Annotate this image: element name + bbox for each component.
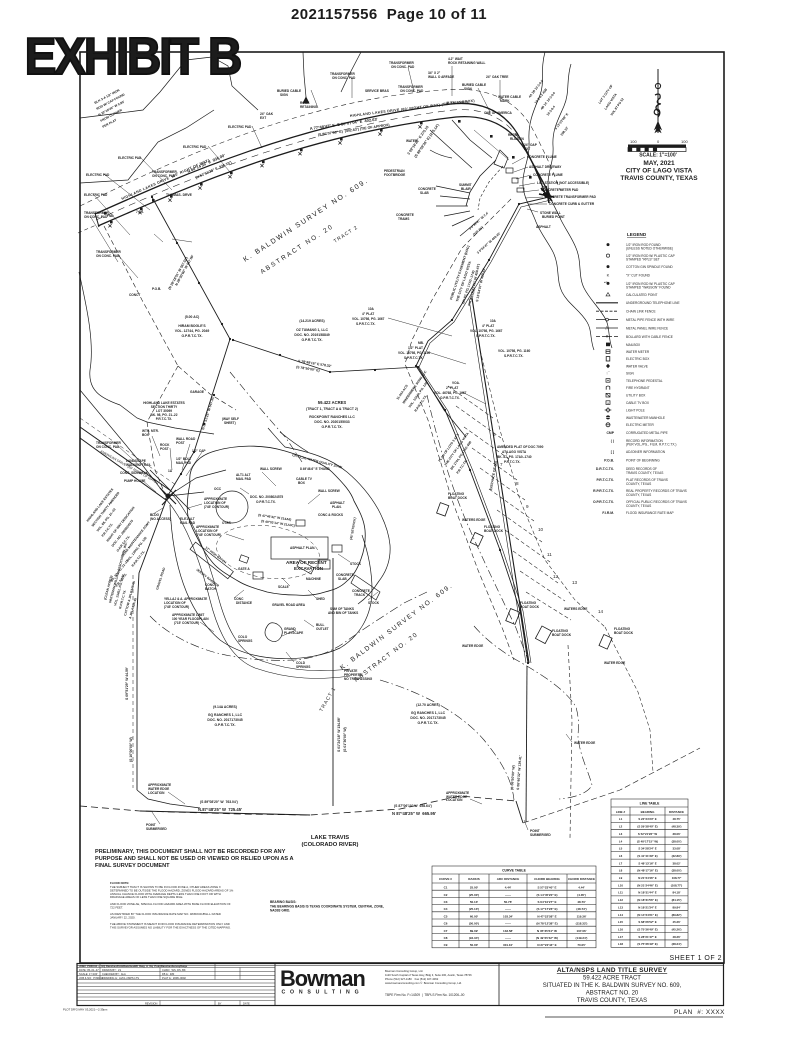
svg-text:CONCRETE FLUME: CONCRETE FLUME [533, 173, 563, 177]
svg-text:O.P.R.T.C.TX.: O.P.R.T.C.TX. [417, 721, 438, 725]
svg-text:BEARING BASIS:: BEARING BASIS: [270, 900, 296, 904]
svg-text:ELECTRIC PAD: ELECTRIC PAD [84, 193, 108, 197]
svg-text:S 22°34′23″ E: S 22°34′23″ E [638, 817, 656, 821]
svg-text:12: 12 [553, 574, 559, 579]
svg-text:EXT: EXT [260, 116, 266, 120]
svg-text:WALL SCREW: WALL SCREW [318, 489, 340, 493]
svg-text:L1: L1 [619, 817, 623, 821]
svg-text:(NO ACCESS): (NO ACCESS) [150, 517, 171, 521]
svg-text:L3: L3 [619, 832, 623, 836]
svg-text:TRAVIS COUNTY, TEXAS: TRAVIS COUNTY, TEXAS [620, 175, 698, 182]
svg-text:ALTA/NSPS LAND TITLE SURVEY: ALTA/NSPS LAND TITLE SURVEY [557, 967, 668, 974]
svg-text:10A: 10A [490, 319, 497, 323]
svg-text:BOAT DOCK: BOAT DOCK [448, 496, 468, 500]
svg-text:L5: L5 [619, 847, 623, 851]
svg-text:VOL. 10798, PG. 1667: VOL. 10798, PG. 1667 [470, 329, 503, 333]
svg-text:301.10': 301.10' [503, 943, 513, 947]
svg-text:P.O.B.: P.O.B. [604, 459, 614, 463]
svg-text:VOL. 10798, PG. 1160: VOL. 10798, PG. 1160 [398, 351, 430, 355]
svg-text:THIS SURVEYOR ASSUMES NO LIABI: THIS SURVEYOR ASSUMES NO LIABILITY FOR T… [110, 925, 231, 929]
svg-text:——: —— [505, 922, 511, 926]
svg-text:PRELIMINARY, THIS DOCUMENT SHA: PRELIMINARY, THIS DOCUMENT SHALL NOT BE … [95, 849, 286, 855]
svg-text:(94.34'): (94.34') [469, 936, 479, 940]
svg-text:(50.00'): (50.00') [469, 922, 479, 926]
svg-text:BOAT DOCK: BOAT DOCK [614, 631, 634, 635]
svg-text:9: 9 [526, 504, 529, 509]
svg-text:10: 10 [538, 527, 544, 532]
svg-text:SLAB: SLAB [420, 191, 429, 195]
svg-text:103.34': 103.34' [503, 914, 513, 918]
svg-text:CMP: CMP [606, 431, 614, 435]
svg-text:JANUARY 22, 2020.: JANUARY 22, 2020. [110, 915, 136, 919]
svg-text:ON CONC. PAD: ON CONC. PAD [391, 65, 415, 69]
svg-text:(48.73'): (48.73') [576, 907, 586, 911]
svg-text:LOCATION: LOCATION [446, 798, 463, 802]
svg-text:89.84': 89.84' [673, 905, 681, 909]
svg-text:59.422 ACRE TRACT: 59.422 ACRE TRACT [583, 976, 641, 982]
svg-text:ON CONC. PAD: ON CONC. PAD [152, 174, 176, 178]
svg-text:(S 29°38′40″ E): (S 29°38′40″ E) [637, 825, 657, 829]
svg-text:DOC. NO. 2008024575: DOC. NO. 2008024575 [250, 495, 283, 499]
svg-text:C2: C2 [444, 893, 448, 897]
svg-text:60.00': 60.00' [470, 914, 479, 918]
svg-text:(745' CONTOUR): (745' CONTOUR) [204, 505, 229, 509]
svg-text:L16: L16 [618, 927, 623, 931]
svg-text:LIGHT POLE: LIGHT POLE [626, 408, 645, 412]
svg-text:S.P.R.T.C.TX.: S.P.R.T.C.TX. [356, 322, 376, 326]
svg-text:MACHINE: MACHINE [306, 577, 321, 581]
svg-text:1/2" PLAT: 1/2" PLAT [408, 346, 423, 350]
svg-text:ADJOINER INFORMATION: ADJOINER INFORMATION [626, 450, 666, 454]
svg-text:O.P.R.T.C.TX.: O.P.R.T.C.TX. [181, 334, 202, 338]
svg-text:(715' CONTOUR): (715' CONTOUR) [174, 621, 199, 625]
svg-text:(N 78°12′38″ E): (N 78°12′38″ E) [536, 922, 557, 926]
svg-text:70.05': 70.05' [577, 943, 586, 947]
svg-text:CURVE TABLE: CURVE TABLE [502, 869, 527, 873]
svg-text:C4: C4 [444, 907, 448, 911]
svg-text:TELEPHONE PEDESTAL: TELEPHONE PEDESTAL [626, 379, 663, 383]
svg-text:WATER EDGE: WATER EDGE [462, 644, 483, 648]
svg-text:OZ TUMANG 1, LLC: OZ TUMANG 1, LLC [296, 328, 328, 332]
svg-text:NAD83 GRID.: NAD83 GRID. [270, 909, 290, 913]
svg-text:ASPHALT DRIVEWAY: ASPHALT DRIVEWAY [529, 165, 562, 169]
svg-text:C3: C3 [444, 900, 448, 904]
svg-text:CITY OF LAGO VISTA: CITY OF LAGO VISTA [626, 168, 693, 175]
svg-text:DOC. NO. 2019158849: DOC. NO. 2019158849 [294, 333, 329, 337]
svg-text:DISTANCE: DISTANCE [669, 810, 684, 814]
svg-text:(COLORADO RIVER): (COLORADO RIVER) [301, 842, 358, 848]
svg-text:8 49'46.6" E THUNB: 8 49'46.6" E THUNB [300, 467, 330, 471]
svg-text:POINT OF BEGINNING: POINT OF BEGINNING [626, 459, 660, 463]
svg-text:www.bowmanconsulting.com © Bo: www.bowmanconsulting.com © Bowman Consul… [385, 981, 462, 985]
svg-text:13: 13 [572, 580, 578, 585]
svg-text:GQ RANCHES 1, LLC: GQ RANCHES 1, LLC [411, 711, 446, 715]
svg-text:SHED: SHED [316, 597, 326, 601]
svg-text:GARAGE: GARAGE [190, 390, 204, 394]
svg-text:(9.14A ACRES): (9.14A ACRES) [213, 705, 237, 709]
svg-text:CHECKED BY: ALA: CHECKED BY: ALA [102, 972, 126, 976]
svg-text:119.36': 119.36' [577, 914, 587, 918]
svg-text:GRAVEL ROAD AREA: GRAVEL ROAD AREA [272, 603, 306, 607]
svg-text:MAIL PAD: MAIL PAD [236, 477, 252, 481]
svg-text:THOMAS. DRVE: THOMAS. DRVE [166, 193, 193, 197]
svg-text:BK. 87, PG. 17A0–1740: BK. 87, PG. 17A0–1740 [497, 455, 532, 459]
svg-text:O.P.R.T.C.TX.: O.P.R.T.C.TX. [301, 338, 322, 342]
svg-text:CONC. SIDEWALK: CONC. SIDEWALK [120, 471, 149, 475]
svg-text:TRACK: TRACK [354, 593, 366, 597]
svg-text:59.422 ACRES: 59.422 ACRES [318, 400, 347, 405]
svg-text:N.87°48'25" W 725.45': N.87°48'25" W 725.45' [198, 807, 242, 812]
svg-text:S 57°23′40″ E: S 57°23′40″ E [537, 886, 556, 890]
svg-text:L18: L18 [618, 942, 623, 946]
svg-text:S 28°21′47″ E: S 28°21′47″ E [638, 935, 656, 939]
svg-text:L15: L15 [618, 920, 623, 924]
svg-text:"X" CUT FOUND: "X" CUT FOUND [626, 273, 651, 277]
svg-text:MAIL PAD: MAIL PAD [180, 521, 196, 525]
svg-text:DISTANCE: DISTANCE [236, 601, 252, 605]
svg-text:FND: FND [107, 214, 114, 218]
svg-text:CABLE TV BOX: CABLE TV BOX [626, 401, 650, 405]
svg-text:DATE: 05–01–47: DATE: 05–01–47 [79, 968, 99, 972]
svg-text:(N 18°31′56″ E): (N 18°31′56″ E) [637, 898, 657, 902]
svg-text:CORRUGATED METAL PIPE: CORRUGATED METAL PIPE [626, 431, 668, 435]
svg-text:EXHIBIT B: EXHIBIT B [25, 27, 241, 85]
svg-text:N 18°21′34″ E: N 18°21′34″ E [638, 905, 657, 909]
svg-text:7: 7 [500, 462, 503, 467]
svg-text:FIRE HYDRANT: FIRE HYDRANT [626, 386, 650, 390]
svg-text:PLAN #: XXXX: PLAN #: XXXX [674, 1009, 725, 1016]
svg-text:L9: L9 [619, 876, 623, 880]
svg-text:N 47°22′58″ E: N 47°22′58″ E [537, 914, 556, 918]
svg-text:38.06': 38.06' [673, 832, 681, 836]
svg-text:CHORD DISTANCE: CHORD DISTANCE [568, 877, 595, 881]
svg-text:VOA.: VOA. [452, 381, 460, 385]
svg-text:N 18°31′44″ E: N 18°31′44″ E [638, 891, 657, 895]
svg-text:GATE A: GATE A [238, 567, 250, 571]
svg-text:N 21°24′46″ E: N 21°24′46″ E [638, 876, 657, 880]
svg-text:TBPE Firm No. F=14309 | TBPL: TBPE Firm No. F=14309 | TBPLS Firm No. 1… [385, 993, 465, 997]
svg-text:48.75': 48.75' [673, 817, 681, 821]
svg-text:BEARING: BEARING [641, 810, 656, 814]
svg-text:SCALE: 1"=100': SCALE: 1"=100' [639, 153, 677, 159]
svg-text:O.P.R.T.C.TX.: O.P.R.T.C.TX. [593, 500, 614, 504]
svg-text:PLAN.: PLAN. [332, 505, 342, 509]
svg-text:FINAL SURVEY DOCUMENT: FINAL SURVEY DOCUMENT [95, 863, 170, 869]
svg-text:ASPHALT PLAN.: ASPHALT PLAN. [290, 546, 315, 550]
svg-text:PLAT &: 2008–0092: PLAT &: 2008–0092 [162, 976, 186, 980]
svg-text:UNDERGROUND TELEPHONE LINE: UNDERGROUND TELEPHONE LINE [626, 301, 680, 305]
svg-text:METAL PIPE FENCE WITH WIRE: METAL PIPE FENCE WITH WIRE [626, 318, 674, 322]
svg-text:Phone (512) 327-1180 Fax (5: Phone (512) 327-1180 Fax (512) 327-4062 [385, 977, 439, 981]
svg-text:WATER EDGE: WATER EDGE [604, 661, 625, 665]
svg-text:SIGN: SIGN [464, 87, 472, 91]
svg-text:(S 48°17′15″ W): (S 48°17′15″ W) [637, 839, 658, 843]
svg-text:O.P.R.T.C.TX.: O.P.R.T.C.TX. [321, 425, 342, 429]
svg-text:MAY, 2021: MAY, 2021 [643, 160, 675, 167]
svg-text:UTILITY BOX: UTILITY BOX [626, 394, 646, 398]
svg-text:BOAT DOCK: BOAT DOCK [484, 529, 504, 533]
svg-text:WATER EDGE: WATER EDGE [574, 741, 595, 745]
svg-text:SPRINGS: SPRINGS [296, 665, 310, 669]
svg-text:LAKE TRAVIS: LAKE TRAVIS [311, 835, 349, 841]
svg-text:(32.89'): (32.89') [672, 854, 682, 858]
svg-text:O.P.R.T.C.TX.: O.P.R.T.C.TX. [440, 396, 460, 400]
svg-text:(S 87°06'10" W 658.64'): (S 87°06'10" W 658.64') [394, 804, 432, 808]
svg-text:OUTLET: OUTLET [316, 627, 329, 631]
svg-text:ON CONC. PAD: ON CONC. PAD [332, 76, 356, 80]
svg-text:SCALE: SCALE [278, 585, 289, 589]
svg-text:VOL. 46768, PG. 1667: VOL. 46768, PG. 1667 [434, 391, 467, 395]
svg-text:——: —— [505, 936, 511, 940]
svg-text:TRAMS: TRAMS [398, 217, 409, 221]
svg-text:C8: C8 [444, 936, 448, 940]
svg-text:S 52°21′26″ W: S 52°21′26″ W [638, 832, 657, 836]
svg-text:S 64°10′27″ E: S 64°10′27″ E [537, 900, 556, 904]
svg-text:AND BIN OF TANKS: AND BIN OF TANKS [328, 611, 358, 615]
svg-text:CONCRETE CURB & GUTTER: CONCRETE CURB & GUTTER [549, 202, 595, 206]
svg-text:DATE: DATE [243, 1001, 250, 1005]
svg-text:RADIUS: RADIUS [468, 877, 480, 881]
svg-text:JOB & NO: P/N0411: JOB & NO: P/N0411 [79, 976, 104, 980]
svg-text:CALCULATED POINT: CALCULATED POINT [626, 293, 658, 297]
svg-text:(N 14°24′21″ E): (N 14°24′21″ E) [637, 913, 657, 917]
svg-text:——: —— [505, 893, 511, 897]
svg-text:K: K [607, 272, 610, 277]
svg-text:(S 14°45′20″ E): (S 14°45′20″ E) [536, 893, 557, 897]
svg-text:25.00': 25.00' [470, 886, 479, 890]
svg-text:WALL SCREW: WALL SCREW [260, 467, 282, 471]
svg-text:SIGN: SIGN [280, 93, 288, 97]
svg-text:●²⁵⁵: ●²⁵⁵ [604, 280, 609, 284]
svg-text:D.R.T.C.TX.: D.R.T.C.TX. [596, 467, 614, 471]
svg-text:(12.70 ACRES): (12.70 ACRES) [416, 703, 439, 707]
svg-text:COUNTY, TEXAS: COUNTY, TEXAS [626, 493, 651, 497]
svg-text:P.R.T.C.TX.: P.R.T.C.TX. [597, 478, 615, 482]
svg-text:ELECTRIC BOX: ELECTRIC BOX [626, 357, 650, 361]
svg-text:N 35°35′24″ W: N 35°35′24″ W [537, 929, 557, 933]
svg-text:STAMPED "WASSON" FOUND: STAMPED "WASSON" FOUND [626, 285, 671, 289]
svg-text:BOX: BOX [298, 481, 306, 485]
svg-text:(745' CONTOUR): (745' CONTOUR) [164, 605, 189, 609]
svg-text:Bowman: Bowman [280, 966, 365, 991]
svg-text:AUTES CABLE: AUTES CABLE [446, 101, 469, 105]
svg-text:STOCK: STOCK [368, 601, 380, 605]
svg-text:ON CONC. PAD: ON CONC. PAD [84, 215, 108, 219]
svg-text:( ): ( ) [611, 439, 614, 443]
svg-text:CHORD BEARING: CHORD BEARING [534, 877, 560, 881]
svg-text:(108.77'): (108.77') [671, 883, 682, 887]
svg-text:L14: L14 [618, 913, 623, 917]
svg-text:L8: L8 [619, 869, 623, 873]
svg-text:BURIED POINT: BURIED POINT [542, 215, 565, 219]
svg-text:NO TRESPASSING: NO TRESPASSING [344, 677, 373, 681]
svg-text:(N 48°17′16″ E): (N 48°17′16″ E) [637, 869, 657, 873]
svg-text:COUNTY, TEXAS: COUNTY, TEXAS [626, 504, 651, 508]
svg-text:38.02': 38.02' [673, 861, 681, 865]
svg-text:8: 8 [516, 481, 519, 486]
svg-text:50.13': 50.13' [470, 900, 479, 904]
svg-text:BLAIR: BLAIR [461, 187, 471, 191]
svg-text:ROCK RETAINING WALL: ROCK RETAINING WALL [448, 61, 486, 65]
svg-text:AREA OF RECENT: AREA OF RECENT [286, 560, 327, 565]
svg-text:F.I.R.M.: F.I.R.M. [602, 511, 614, 515]
svg-text:DOC. NO. 2017173045: DOC. NO. 2017173045 [207, 718, 242, 722]
svg-text:SUBMERGED: SUBMERGED [146, 827, 167, 831]
svg-text:SCALE: 1"=100': SCALE: 1"=100' [79, 972, 98, 976]
svg-text:WATER VALVE: WATER VALVE [626, 364, 648, 368]
svg-text:COTTON GIN SPINDLE FOUND: COTTON GIN SPINDLE FOUND [626, 265, 673, 269]
svg-text:(S 89°08'20" W 763.04'): (S 89°08'20" W 763.04') [200, 800, 238, 804]
svg-text:(38.24'): (38.24') [672, 942, 682, 946]
svg-text:(PER VOL./PG., FILM, R.P.T.C.T: (PER VOL./PG., FILM, R.P.T.C.TX.) [626, 443, 676, 447]
svg-text:C6: C6 [444, 922, 448, 926]
svg-text:AMENDED PLAT OF DOC 7090: AMENDED PLAT OF DOC 7090 [497, 445, 544, 449]
svg-text:OCC: OCC [214, 487, 222, 491]
svg-text:(38.00'): (38.00') [672, 839, 682, 843]
svg-text:PLAYSCAPE: PLAYSCAPE [284, 631, 303, 635]
svg-text:(149.24'): (149.24') [576, 936, 588, 940]
svg-text:DRAINAGE AREAS OF LESS THAN ON: DRAINAGE AREAS OF LESS THAN ONE SQUARE M… [110, 895, 183, 899]
svg-text:POST: POST [160, 447, 169, 451]
svg-text:REVISION: REVISION [145, 1001, 158, 1005]
svg-text:P.R.T.C.TX.: P.R.T.C.TX. [504, 460, 521, 464]
svg-text:(118.32'): (118.32') [576, 922, 588, 926]
svg-text:PURPOSE AND SHALL NOT BE USED: PURPOSE AND SHALL NOT BE USED OR VIEWED … [95, 856, 294, 862]
svg-text:S 09°51'29" W 44.59': S 09°51'29" W 44.59' [125, 667, 129, 700]
svg-text:MB.: MB. [418, 341, 424, 345]
svg-text:[ ]: [ ] [611, 450, 614, 454]
svg-text:50.00': 50.00' [470, 943, 479, 947]
svg-text:ELECTRIC PAD: ELECTRIC PAD [228, 125, 252, 129]
svg-text:(N 21°24′46″ E): (N 21°24′46″ E) [637, 883, 657, 887]
svg-text:ON CONC. PAD: ON CONC. PAD [96, 445, 120, 449]
svg-text:14: 14 [598, 609, 604, 614]
svg-text:(N 49°25′42″ W): (N 49°25′42″ W) [536, 936, 558, 940]
svg-text:FOOTBRIDGE: FOOTBRIDGE [384, 173, 405, 177]
svg-text:Bowman Consulting Group, Ltd.: Bowman Consulting Group, Ltd. [385, 969, 423, 973]
svg-text:1/2" CAP: 1/2" CAP [192, 449, 206, 453]
svg-text:O.P.R.T.C.TX.: O.P.R.T.C.TX. [214, 723, 235, 727]
svg-text:50.76': 50.76' [504, 900, 513, 904]
svg-text:SITUATED IN THE K. BALDWIN SUR: SITUATED IN THE K. BALDWIN SURVEY NO. 60… [543, 983, 682, 989]
svg-text:SLAB: SLAB [338, 577, 347, 581]
svg-text:LINE #: LINE # [616, 810, 626, 814]
svg-text:133.58': 133.58' [503, 929, 513, 933]
svg-text:ABSTRACT NO. 20: ABSTRACT NO. 20 [586, 991, 639, 997]
svg-text:LOCATION: LOCATION [148, 791, 165, 795]
svg-text:EXT: EXT [524, 147, 530, 151]
svg-text:O.P.R.T.C.TX.: O.P.R.T.C.TX. [256, 500, 276, 504]
svg-text:WATER METER: WATER METER [626, 350, 650, 354]
svg-text:BOAT DOCK: BOAT DOCK [520, 605, 540, 609]
svg-text:(25.00'): (25.00') [469, 893, 479, 897]
svg-text:CHAIN LINK FENCE: CHAIN LINK FENCE [626, 310, 656, 314]
svg-text:FB &: 480: FB &: 480 [162, 972, 175, 976]
svg-text:4" PLAT: 4" PLAT [362, 312, 374, 316]
svg-text:(UNLESS NOTED OTHERWISE): (UNLESS NOTED OTHERWISE) [626, 247, 673, 251]
svg-text:S 48°13′16″ E: S 48°13′16″ E [638, 861, 656, 865]
svg-text:POST: POST [176, 441, 185, 445]
svg-text:DRAWN BY: LS: DRAWN BY: LS [102, 968, 121, 972]
svg-text:OTBS: OTBS [222, 521, 231, 525]
svg-text:LEGEND: LEGEND [627, 232, 647, 237]
svg-text:ONE OF AMERICA: ONE OF AMERICA [484, 111, 513, 115]
svg-text:(S 75°36′49″ E): (S 75°36′49″ E) [637, 927, 657, 931]
svg-text:L6: L6 [619, 854, 623, 858]
svg-text:(14.219 ACRES): (14.219 ACRES) [299, 319, 324, 323]
svg-text:WATERS EDGE: WATERS EDGE [564, 607, 587, 611]
svg-text:C9: C9 [444, 943, 448, 947]
svg-text:MAILBOX: MAILBOX [626, 343, 641, 347]
svg-text:BOAT DOCK: BOAT DOCK [552, 633, 572, 637]
svg-text:6: 6 [493, 432, 496, 437]
svg-text:11: 11 [547, 552, 552, 557]
svg-text:P.R.T.C.TX.: P.R.T.C.TX. [156, 417, 173, 421]
svg-text:7.0.2.: 7.0.2. [136, 210, 144, 214]
svg-text:(S 17°17′26″ E): (S 17°17′26″ E) [536, 907, 557, 911]
svg-text:(S 41°41′39″ E): (S 41°41′39″ E) [637, 854, 657, 858]
svg-text:722 FEET.: 722 FEET. [110, 905, 123, 909]
svg-text:C1: C1 [444, 886, 448, 890]
svg-text:DOC. NO. 2017173045: DOC. NO. 2017173045 [410, 716, 445, 720]
svg-text:(5.00 AC): (5.00 AC) [185, 315, 200, 319]
svg-text:ELECTRIC PAD: ELECTRIC PAD [86, 173, 110, 177]
svg-text:4" PLAT: 4" PLAT [482, 324, 494, 328]
svg-text:1120 South Capital of Texas Hw: 1120 South Capital of Texas Hwy, Bldg 3,… [385, 973, 472, 977]
svg-text:84.18': 84.18' [673, 891, 681, 895]
svg-text:ELECTRIC PAD: ELECTRIC PAD [118, 156, 142, 160]
svg-text:L17: L17 [618, 935, 623, 939]
svg-text:2021157556 Page 10 of 11: 2021157556 Page 10 of 11 [291, 6, 487, 23]
svg-text:(4.35'): (4.35') [577, 893, 586, 897]
svg-text:SPRINGS: SPRINGS [238, 639, 252, 643]
svg-text:BOLLARD WITH CABLE FENCE: BOLLARD WITH CABLE FENCE [626, 335, 673, 339]
svg-text:WALL O ARFADE: WALL O ARFADE [428, 75, 454, 79]
svg-text:L12: L12 [618, 898, 623, 902]
svg-text:METAL PANEL WIRE FENCE: METAL PANEL WIRE FENCE [626, 326, 668, 330]
svg-text:L7: L7 [619, 861, 623, 865]
svg-text:S 34°28′24″ E: S 34°28′24″ E [638, 847, 656, 851]
svg-text:S.P.R.T.C.TX.: S.P.R.T.C.TX. [404, 356, 424, 360]
svg-text:WATER: WATER [406, 139, 418, 143]
svg-text:S 68°26′52″ E: S 68°26′52″ E [638, 920, 656, 924]
svg-text:C7: C7 [444, 929, 448, 933]
svg-text:ELECTRIC PAD: ELECTRIC PAD [183, 145, 207, 149]
svg-text:SIGN: SIGN [626, 372, 634, 376]
svg-text:(48.39'): (48.39') [672, 825, 682, 829]
svg-text:——: —— [505, 907, 511, 911]
svg-text:CHKD: WS, DS, BK: CHKD: WS, DS, BK [162, 968, 186, 972]
svg-text:C5: C5 [444, 914, 448, 918]
svg-text:89.09': 89.09' [470, 929, 479, 933]
svg-text:10A: 10A [368, 307, 375, 311]
svg-text:P.O.B.: P.O.B. [152, 287, 161, 291]
svg-text:CURVE #: CURVE # [439, 877, 452, 881]
svg-text:(89.82'): (89.82') [672, 913, 682, 917]
svg-text:WASTEWATER MANHOLE: WASTEWATER MANHOLE [626, 416, 665, 420]
svg-text:JOB# P/N0411 — GQ RanchesPoin: JOB# P/N0411 — GQ RanchesPointRanchesBD … [79, 964, 188, 968]
svg-text:S.P.R.T.C.TX.: S.P.R.T.C.TX. [476, 334, 496, 338]
svg-text:100: 100 [630, 139, 637, 144]
svg-text:SERVICE BRAS: SERVICE BRAS [365, 89, 389, 93]
svg-text:24" OAK TREE: 24" OAK TREE [486, 75, 508, 79]
svg-text:N 87°48'25" W 665.95': N 87°48'25" W 665.95' [392, 811, 436, 816]
svg-text:TRAVIS COUNTY, TEXAS: TRAVIS COUNTY, TEXAS [577, 998, 647, 1004]
svg-text:45.26': 45.26' [673, 920, 681, 924]
svg-text:48.70': 48.70' [577, 900, 586, 904]
svg-text:TRAVIS COUNTY, TEXAS: TRAVIS COUNTY, TEXAS [626, 471, 663, 475]
svg-text:HIRAM BOGLE'S: HIRAM BOGLE'S [178, 324, 206, 328]
